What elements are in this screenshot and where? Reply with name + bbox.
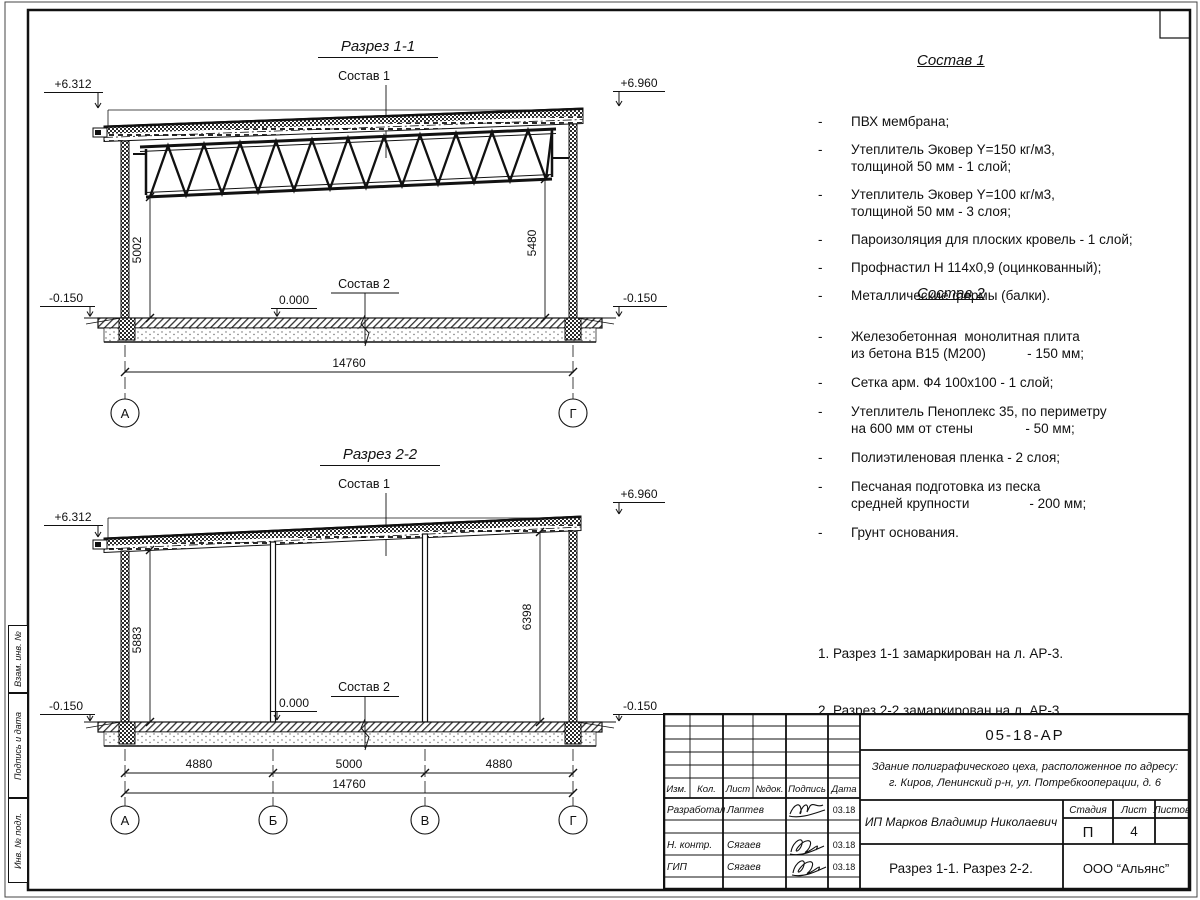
leader-label-sostav1: Состав 1 [338, 477, 390, 491]
strip-vzam-inv: Взам. инв. № [8, 625, 28, 693]
row-date: 03.18 [833, 862, 856, 872]
wall-left [121, 551, 129, 722]
section-2-title: Разрез 2-2 [343, 446, 418, 463]
list-item: -Полиэтиленовая пленка - 2 слоя; [812, 449, 1200, 466]
doc-number: 05-18-АР [985, 727, 1064, 744]
roof-assembly [93, 108, 583, 142]
row-role: Н. контр. [667, 840, 712, 851]
dim-value: 4880 [186, 757, 213, 771]
floor-slab [84, 315, 616, 346]
sheet-header: Лист [1120, 805, 1147, 816]
sostav-1-heading: Состав 1 [917, 52, 985, 69]
sostav-2-heading: Состав 2 [917, 285, 985, 302]
dim-value: 5480 [525, 229, 539, 256]
list-dash: - [812, 113, 851, 130]
list-item: -ПВХ мембрана; [812, 113, 1192, 130]
elevation-value: 0.000 [279, 293, 309, 307]
elevation-value: +6.960 [620, 76, 657, 90]
elevation-value: -0.150 [623, 291, 657, 305]
list-item: -Профнастил Н 114х0,9 (оцинкованный); [812, 259, 1192, 276]
strip-inv-podl: Инв. № подл. [8, 798, 28, 883]
dim-value: 5002 [130, 236, 144, 263]
axes-and-total-dim: 14760 А Г [111, 345, 587, 427]
axes-and-dims: 4880 5000 4880 14760 А Б В Г [111, 749, 587, 834]
leader-label-sostav1: Состав 1 [338, 69, 390, 83]
list-dash: - [812, 328, 851, 362]
col-izm: Изм. [666, 784, 686, 795]
list-item: -Утеплитель Эковер Y=150 кг/м3,толщиной … [812, 141, 1192, 175]
stage-value: П [1083, 824, 1094, 841]
row-date: 03.18 [833, 805, 856, 815]
col-list: Лист [725, 784, 751, 795]
foundation-left [119, 318, 135, 340]
note-line: 1. Разрез 1-1 замаркирован на л. АР-3. [818, 644, 1063, 663]
list-item: -Железобетонная монолитная плитаиз бетон… [812, 328, 1200, 362]
dim-value: 5883 [130, 626, 144, 653]
drawing-name: Разрез 1-1. Разрез 2-2. [889, 861, 1033, 876]
list-dash: - [812, 478, 851, 512]
section-1-title: Разрез 1-1 [341, 38, 415, 55]
list-item: -Утеплитель Эковер Y=100 кг/м3,толщиной … [812, 186, 1192, 220]
list-item: -Сетка арм. Ф4 100х100 - 1 слой; [812, 374, 1200, 391]
foundation-right [565, 318, 581, 340]
leader-label-sostav2: Состав 2 [338, 680, 390, 694]
dim-value: 14760 [332, 356, 366, 370]
elevation-value: +6.960 [620, 487, 657, 501]
sheet-value: 4 [1130, 824, 1138, 839]
list-item: -Песчаная подготовка из пескасредней кру… [812, 478, 1200, 512]
column-b [271, 542, 276, 722]
list-dash: - [812, 186, 851, 220]
section-2-2: Разрез 2-2 Состав 1 [40, 446, 667, 834]
list-dash: - [812, 374, 851, 391]
axis-label: А [121, 813, 130, 828]
dim-value: 14760 [332, 777, 366, 791]
list-item: -Утеплитель Пеноплекс 35, по периметруна… [812, 403, 1200, 437]
col-podpis: Подпись [788, 784, 826, 795]
corner-box [1160, 10, 1190, 38]
object-line-1: Здание полиграфического цеха, расположен… [872, 761, 1178, 773]
sostav-1-list: Состав 1 -ПВХ мембрана; -Утеплитель Эков… [812, 52, 1192, 304]
elevation-value: 0.000 [279, 696, 309, 710]
floor-slab [84, 719, 616, 750]
axis-label: Г [569, 406, 576, 421]
list-dash: - [812, 449, 851, 466]
leader-label-sostav2: Состав 2 [338, 277, 390, 291]
wall-right [569, 531, 577, 722]
object-line-2: г. Киров, Ленинский р-н, ул. Потребкоопе… [889, 777, 1162, 789]
elevation-value: -0.150 [49, 699, 83, 713]
vertical-dimensions: 5002 5480 [130, 175, 549, 322]
column-v [423, 534, 428, 722]
list-dash: - [812, 403, 851, 437]
wall-right [569, 124, 577, 318]
elevation-value: +6.312 [54, 510, 91, 524]
sheets-header: Листов [1153, 805, 1190, 816]
steel-truss [133, 129, 569, 197]
company-name: ООО “Альянс” [1083, 861, 1169, 876]
list-item: -Грунт основания. [812, 524, 1200, 541]
elevation-value: +6.312 [54, 77, 91, 91]
list-item: -Пароизоляция для плоских кровель - 1 сл… [812, 231, 1192, 248]
wall-left [121, 141, 129, 318]
row-date: 03.18 [833, 840, 856, 850]
list-dash: - [812, 524, 851, 541]
list-dash: - [812, 259, 851, 276]
foundation-left [119, 722, 135, 744]
stage-header: Стадия [1069, 805, 1107, 816]
section-1-1: Разрез 1-1 Состав 1 [40, 38, 667, 427]
sostav-2-list: Состав 2 -Железобетонная монолитная плит… [812, 285, 1200, 541]
axis-label: А [121, 406, 130, 421]
axis-label: В [421, 813, 430, 828]
elevation-value: -0.150 [623, 699, 657, 713]
row-name: Лаптев [726, 805, 764, 816]
dim-value: 4880 [486, 757, 513, 771]
title-block: 05-18-АР Здание полиграфического цеха, р… [663, 713, 1190, 890]
dim-value: 5000 [336, 757, 363, 771]
dim-value: 6398 [520, 603, 534, 630]
row-role: Разработал [667, 804, 726, 816]
drawing-sheet: Разрез 1-1 Состав 1 [0, 0, 1200, 900]
row-name: Сягаев [727, 840, 761, 851]
col-kol: Кол. [697, 784, 716, 795]
col-data: Дата [830, 784, 856, 795]
row-name: Сягаев [727, 862, 761, 873]
list-dash: - [812, 141, 851, 175]
axis-label: Г [569, 813, 576, 828]
axis-label: Б [269, 813, 278, 828]
strip-podpis-data: Подпись и дата [8, 693, 28, 798]
list-dash: - [812, 231, 851, 248]
foundation-right [565, 722, 581, 744]
col-ndok: №док. [756, 784, 784, 795]
row-role: ГИП [667, 862, 688, 873]
roof-assembly [93, 516, 581, 553]
client-name: ИП Марков Владимир Николаевич [865, 815, 1057, 829]
elevation-value: -0.150 [49, 291, 83, 305]
